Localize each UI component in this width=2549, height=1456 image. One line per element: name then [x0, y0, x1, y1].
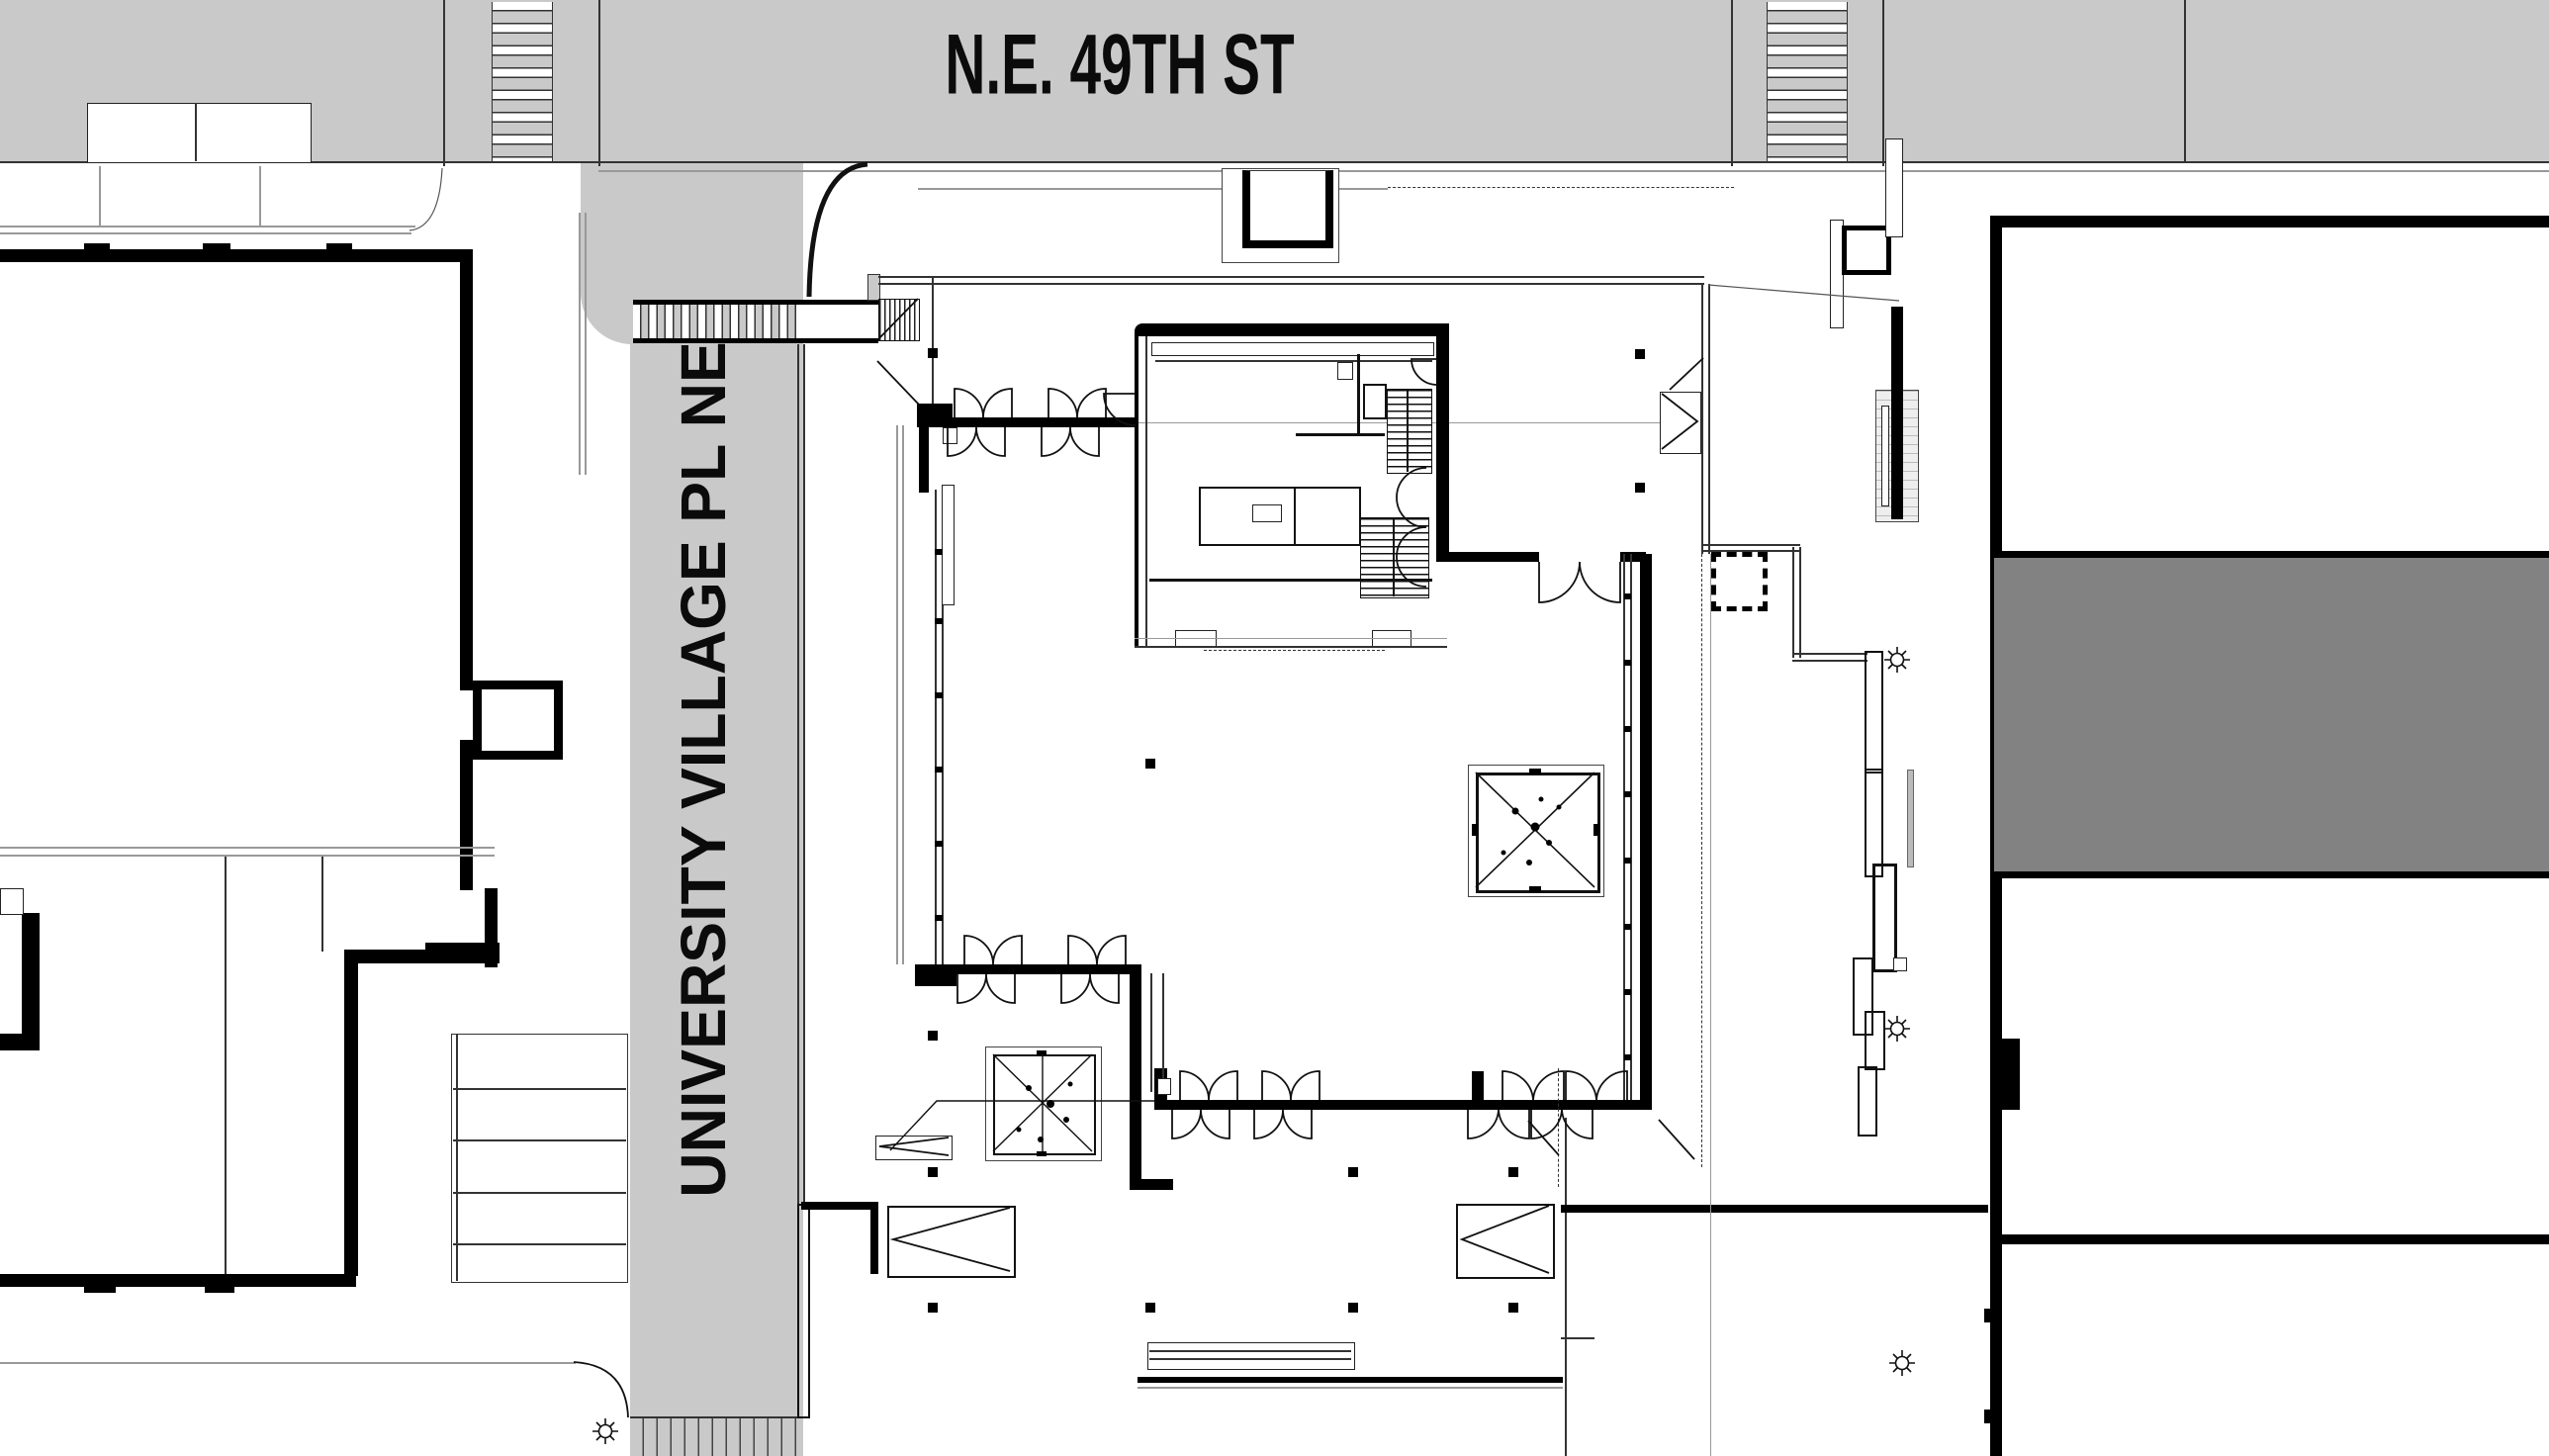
curb-ramp-pad: [867, 274, 880, 301]
curb-line: [579, 213, 581, 475]
building-west-north-wall: [0, 249, 473, 262]
column: [928, 1031, 938, 1041]
column: [1145, 759, 1155, 769]
property-line: [1710, 554, 1711, 1456]
mullion-tick: [1624, 660, 1631, 666]
box-tick: [1037, 1050, 1047, 1055]
site-line: [932, 277, 934, 408]
vestibule-glass: [1162, 973, 1164, 1092]
utility-box: [1893, 957, 1907, 971]
bench-line: [1149, 1358, 1351, 1360]
mullion-tick: [1624, 726, 1631, 732]
stall-line: [453, 1088, 626, 1090]
building-southwest-bottom-wall: [0, 1274, 356, 1287]
plaza-wall: [801, 1202, 878, 1210]
column: [1348, 1167, 1358, 1177]
wall-bump: [326, 243, 352, 250]
shaft-box-small: [1337, 362, 1353, 380]
door-pier: [1472, 1071, 1484, 1101]
column: [928, 1303, 938, 1313]
box-tick: [1472, 824, 1478, 836]
vestibule-walls: [1242, 170, 1333, 248]
street-edge-line: [0, 161, 2549, 163]
mullion-tick: [935, 549, 943, 555]
curb-line: [585, 213, 587, 475]
stair-rail: [1393, 517, 1395, 596]
canopy-dashed: [1558, 1068, 1559, 1187]
mullion-tick: [935, 692, 943, 698]
solid-wall-bar: [22, 913, 40, 1050]
west-wall-upper: [919, 425, 929, 493]
room-partition: [1294, 487, 1361, 546]
mullion-tick: [935, 841, 943, 847]
stall-divider: [195, 103, 197, 161]
plaza-edge-line: [1138, 1387, 1563, 1389]
site-wall-segment: [1872, 864, 1897, 972]
box-tick: [1529, 769, 1541, 774]
column: [1145, 1303, 1155, 1313]
curb-line: [1882, 0, 1884, 166]
interior-line: [1155, 360, 1432, 362]
site-wall-segment: [1865, 769, 1883, 877]
mullion-tick: [1624, 858, 1631, 864]
east-wall: [1640, 554, 1652, 1110]
building-east-interior-wall: [1990, 1234, 2549, 1244]
kiosk-box: [1842, 226, 1891, 275]
mullion-tick: [1624, 924, 1631, 930]
stall-line: [453, 1139, 626, 1141]
curb-line: [1731, 0, 1733, 166]
stall-line: [453, 1192, 626, 1194]
stall-divider: [99, 166, 101, 226]
crosswalk-edge: [633, 300, 878, 305]
planting-inner: [1881, 406, 1889, 506]
core-base-line: [1135, 638, 1447, 639]
stall-block-north: [87, 103, 312, 163]
plaza-diagonal: [1659, 1120, 1694, 1159]
curb-line: [443, 0, 445, 166]
curb-line: [803, 344, 805, 1204]
canopy-line: [878, 276, 1704, 278]
building-southwest-top-wall: [344, 950, 500, 963]
west-wing-north-wall: [917, 417, 1137, 427]
vestibule-l-wall: [1130, 1179, 1173, 1190]
grade-line: [1708, 285, 1899, 301]
core-west-wall: [1135, 336, 1138, 648]
overhang-line-dashed: [1388, 187, 1734, 188]
sidewalk-line: [0, 1362, 576, 1364]
stair-run-lower: [1360, 517, 1429, 598]
planter-line: [896, 425, 898, 964]
core-east-wall: [1436, 323, 1449, 561]
planter-line: [902, 425, 904, 964]
wall-step: [1984, 1309, 1992, 1322]
bench-line: [1149, 1350, 1351, 1352]
path-line: [1701, 544, 1800, 546]
storefront-line: [1630, 554, 1632, 1104]
parking-stalls: [451, 1034, 628, 1283]
entry-stoop: [0, 888, 24, 915]
streetlight-icon: [1884, 647, 1910, 673]
box-tick: [1037, 1151, 1047, 1156]
site-wall-segment: [1865, 1011, 1885, 1070]
dashed-pad: [1711, 552, 1768, 611]
planter-sliver: [1907, 770, 1914, 867]
column: [1508, 1167, 1518, 1177]
curb-line: [797, 344, 799, 1204]
skylight-box-sw-inner: [993, 1054, 1096, 1155]
property-line: [1565, 1118, 1567, 1456]
wall-notch: [2000, 1039, 2020, 1110]
sidewalk-curve: [410, 168, 442, 230]
mullion-tick: [935, 915, 943, 921]
ramp-arrow-se: [1456, 1204, 1555, 1279]
wall-step: [1984, 1410, 1992, 1423]
ramp-arrow-ne: [1660, 392, 1701, 454]
core-north-wall: [1135, 323, 1449, 336]
box-tick: [1593, 824, 1599, 836]
site-wall-bar: [1891, 307, 1903, 519]
canopy-line-east: [1701, 284, 1703, 554]
path-line: [1792, 653, 1867, 655]
building-southwest-east-wall: [344, 950, 358, 1276]
door-arcs-core-south: [1539, 562, 1620, 602]
mullion-tick: [1624, 593, 1631, 599]
mullion-tick: [935, 767, 943, 773]
stall-divider: [259, 166, 261, 226]
kiosk-outline: [1885, 138, 1903, 237]
building-west-east-wall: [460, 249, 473, 690]
hall-south-wall: [1154, 1100, 1644, 1110]
streetlight-icon: [592, 1418, 618, 1444]
skylight-box-se-inner: [1476, 773, 1600, 893]
column: [928, 348, 938, 358]
wall-bump: [84, 243, 110, 250]
ne-49th-st-label: N.E. 49TH ST: [945, 17, 1294, 115]
fixture: [1252, 504, 1282, 522]
building-west-east-wall: [460, 740, 473, 890]
alley-line: [0, 847, 495, 849]
site-plan: N.E. 49TH ST UNIVERSITY VILLAGE PL NE: [0, 0, 2549, 1456]
wall-bump: [205, 1287, 234, 1293]
stall-line: [453, 1243, 626, 1245]
core-south-wall: [1436, 552, 1539, 562]
building-east-gray-roof: [1994, 551, 2549, 878]
streetlight-icon: [1884, 1016, 1910, 1042]
site-wall-segment: [1858, 1066, 1877, 1137]
property-line: [225, 857, 227, 1274]
storefront-line: [935, 490, 937, 966]
mullion-tick: [1624, 791, 1631, 797]
core-base-line: [1135, 646, 1447, 648]
wall-step: [425, 943, 500, 951]
alley-line: [0, 855, 495, 857]
building-west-window-bay: [473, 681, 563, 760]
crosswalk-north-uvp: [633, 305, 803, 338]
university-village-pl-label: UNIVERSITY VILLAGE PL NE: [667, 341, 740, 1197]
canopy-line: [878, 283, 1704, 285]
street-corner-flare: [581, 161, 632, 344]
mullion-tick: [1624, 1054, 1631, 1060]
plaza-diagonal: [1528, 1121, 1559, 1155]
streetlight-icon: [1889, 1350, 1915, 1376]
bench: [1147, 1342, 1355, 1370]
column: [1635, 349, 1645, 359]
partition: [1149, 579, 1432, 582]
soffit-dashed-line: [1204, 650, 1385, 651]
stair-run-upper: [1387, 389, 1432, 474]
path-line: [1792, 547, 1794, 658]
corner-chamfer: [877, 361, 919, 405]
sidewalk-curve: [574, 1362, 628, 1417]
path-line: [1792, 660, 1867, 662]
step-line: [1561, 1337, 1594, 1339]
box-tick: [1529, 886, 1541, 892]
crosswalk-east: [1767, 2, 1848, 161]
plaza-wall: [870, 1209, 878, 1274]
window-band: [1151, 342, 1434, 356]
mullion-tick: [1624, 989, 1631, 995]
partition: [1357, 354, 1360, 435]
column: [1635, 483, 1645, 493]
vestibule-l-wall: [1130, 964, 1141, 1190]
glazing-panel: [942, 485, 955, 605]
site-wall-segment: [1865, 651, 1883, 773]
door-jamb: [943, 427, 957, 444]
wall-bump: [203, 243, 230, 250]
ramp-arrow-sw-small: [875, 1136, 953, 1160]
vestibule-glass: [1150, 973, 1152, 1092]
curb-arc: [809, 164, 867, 297]
column: [1508, 1303, 1518, 1313]
elevator-box: [1363, 384, 1387, 419]
wall-bump: [84, 1287, 116, 1293]
sidewalk-line: [598, 170, 2549, 172]
room-partition: [1199, 487, 1298, 546]
canopy-dashed-east: [1701, 554, 1702, 1167]
building-east-north-wall: [1990, 216, 2549, 227]
sw-corner-block: [915, 964, 956, 986]
curb-line: [598, 0, 600, 166]
ramp-arrow-sw: [887, 1206, 1016, 1278]
trellis-diagonal: [1670, 358, 1703, 390]
partition: [1296, 433, 1385, 436]
core-west-inner-line: [1145, 336, 1147, 648]
path-line: [1799, 547, 1801, 658]
storefront-line: [1623, 554, 1625, 1104]
door-arc-core-ne: [1411, 359, 1437, 385]
warning-strip: [878, 299, 920, 341]
crosswalk-west: [492, 2, 553, 161]
column: [1348, 1303, 1358, 1313]
canopy-line-east: [1708, 284, 1710, 554]
sidewalk-line: [0, 226, 415, 227]
lane-line: [2184, 0, 2186, 161]
door-jamb: [1157, 1078, 1171, 1095]
plaza-south-wall: [1561, 1205, 1988, 1213]
crosswalk-south-uvp: [630, 1416, 803, 1456]
stair-rail: [1407, 389, 1409, 472]
street-wall: [797, 1204, 810, 1418]
sidewalk-line: [0, 232, 411, 234]
property-line: [321, 857, 323, 952]
column: [928, 1167, 938, 1177]
plaza-edge: [1138, 1377, 1563, 1383]
solid-wall-bar: [0, 1034, 40, 1050]
mullion-tick: [935, 618, 943, 624]
